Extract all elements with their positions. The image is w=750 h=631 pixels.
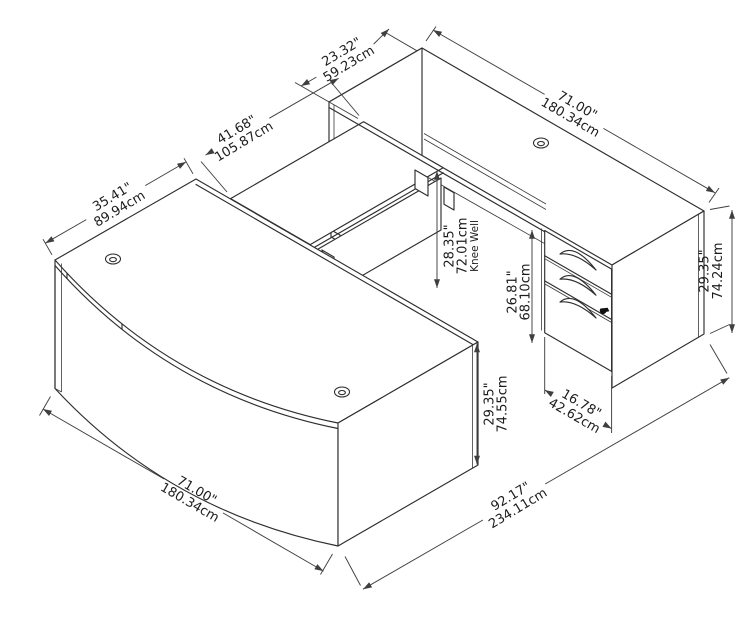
dim-knee-well-label: Knee Well bbox=[469, 220, 481, 272]
dim-desk-height-cm: 74.55cm bbox=[496, 375, 511, 432]
dim-credenza-clearance: 26.81" 68.10cm bbox=[506, 230, 534, 343]
dim-credenza-height-cm: 74.24cm bbox=[711, 242, 726, 299]
dim-desk-height: 29.35" 74.55cm bbox=[477, 344, 511, 465]
desk-dimension-diagram: 23.32" 59.23cm 71.00" 180.34cm 41.68" 10… bbox=[0, 0, 750, 631]
dim-credenza-clearance-cm: 68.10cm bbox=[519, 263, 534, 320]
diagram-canvas: 23.32" 59.23cm 71.00" 180.34cm 41.68" 10… bbox=[0, 0, 750, 631]
cable-tray bbox=[444, 187, 454, 210]
